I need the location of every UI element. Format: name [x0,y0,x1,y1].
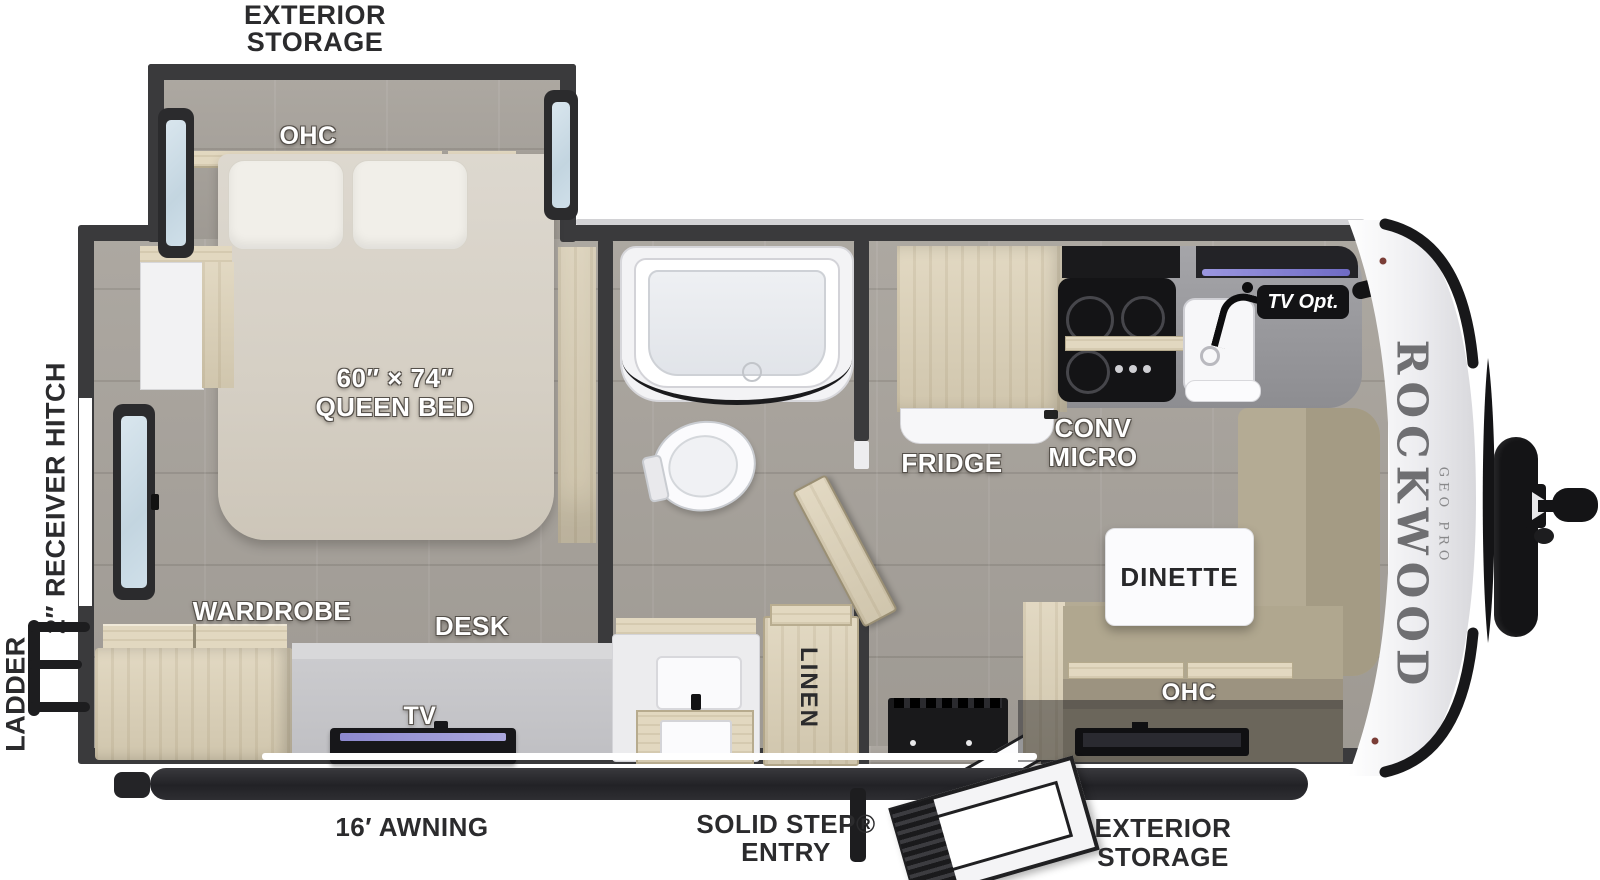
window-opening [79,398,92,606]
vanity-faucet [691,694,701,710]
fridge-cabinet [897,246,1067,412]
vanity-backsplash [616,618,756,634]
burner [1066,350,1110,394]
bed-label: 60″ × 74″ QUEEN BED [300,364,490,422]
desk-tv-screen [340,733,506,741]
burner [1121,296,1165,340]
dinette-table: DINETTE [1105,528,1254,626]
entry-label: SOLID STEP® ENTRY [686,810,886,866]
tongue-jack-handle [1552,488,1598,522]
jack-wheel [1534,528,1554,544]
awning-tube [150,768,1308,800]
ladder-rung [28,660,82,669]
wall-top-right-segment [564,225,1400,241]
fireplace-light [910,740,916,746]
tv-opt-label: TV Opt. [1267,291,1338,314]
propane-cover [1494,437,1538,637]
slideout-wall-top [148,64,576,80]
front-cap-blade [1483,358,1495,643]
ohc-shelf-dinette-2 [1187,662,1293,679]
dinette-label: DINETTE [1120,562,1238,593]
exterior-storage-bottom-label: EXTERIOR STORAGE [1083,814,1243,872]
bed-type-label: QUEEN BED [300,393,490,422]
receiver-hitch-label: 2″ RECEIVER HITCH [41,362,72,634]
floorplan: LINEN TV Opt. DINETTE OHC [0,0,1600,880]
wardrobe-bench-gap [193,624,196,648]
sink-cover [1185,380,1261,402]
nightstand-side [202,262,234,388]
pillow [352,160,468,250]
ohc-bedroom-label: OHC [258,122,358,151]
cooktop-knob [1129,365,1137,373]
exterior-tv-screen [1083,733,1241,747]
bedside-wardrobe-column [558,247,596,543]
conv-micro-label: CONV MICRO [1013,414,1173,472]
pillow [228,160,344,250]
exterior-storage-top-label: EXTERIOR STORAGE [235,2,395,56]
desk-label: DESK [412,611,532,642]
wardrobe-cabinet [95,648,293,760]
linen-cabinet-top [770,604,852,626]
linen-label: LINEN [794,647,822,729]
brand-sub-logo: GEO PRO [1436,467,1451,566]
window-glass [121,416,147,588]
fireplace-vents [894,698,1002,708]
kitchen-faucet-handle [1242,282,1253,293]
exterior-tv [1075,728,1249,756]
window-glass [552,102,570,208]
desk-top-edge [292,643,612,659]
fireplace-light [966,740,972,746]
cooktop-knob [1143,365,1151,373]
window-latch [151,494,159,510]
wardrobe-label: WARDROBE [182,596,362,627]
marker-light [1380,258,1387,265]
marker-light [1372,738,1379,745]
window-glass [166,120,186,246]
tv-desk-label: TV [390,702,450,731]
fridge-label: FRIDGE [882,448,1022,479]
range-hood [1062,246,1180,278]
nightstand [140,262,204,390]
led-strip [1202,269,1350,276]
kitchen-sink-drain [1200,346,1220,366]
awning-rail [262,753,1037,760]
vanity-sink [660,720,732,756]
bed-size-label: 60″ × 74″ [300,364,490,393]
fireplace [888,698,1008,756]
ladder-rung [28,622,90,632]
awning-label: 16′ AWNING [312,812,512,843]
bathroom-wall-right-upper [854,239,869,441]
cooktop-knob [1115,365,1123,373]
ladder-label: LADDER [1,636,32,752]
ohc-shelf-dinette [1068,662,1184,679]
awning-bracket [114,772,150,798]
ladder-rung [28,702,90,712]
bathroom-wall-end-cap [854,441,869,469]
brand-logo: ROCKWOOD [1388,340,1437,693]
